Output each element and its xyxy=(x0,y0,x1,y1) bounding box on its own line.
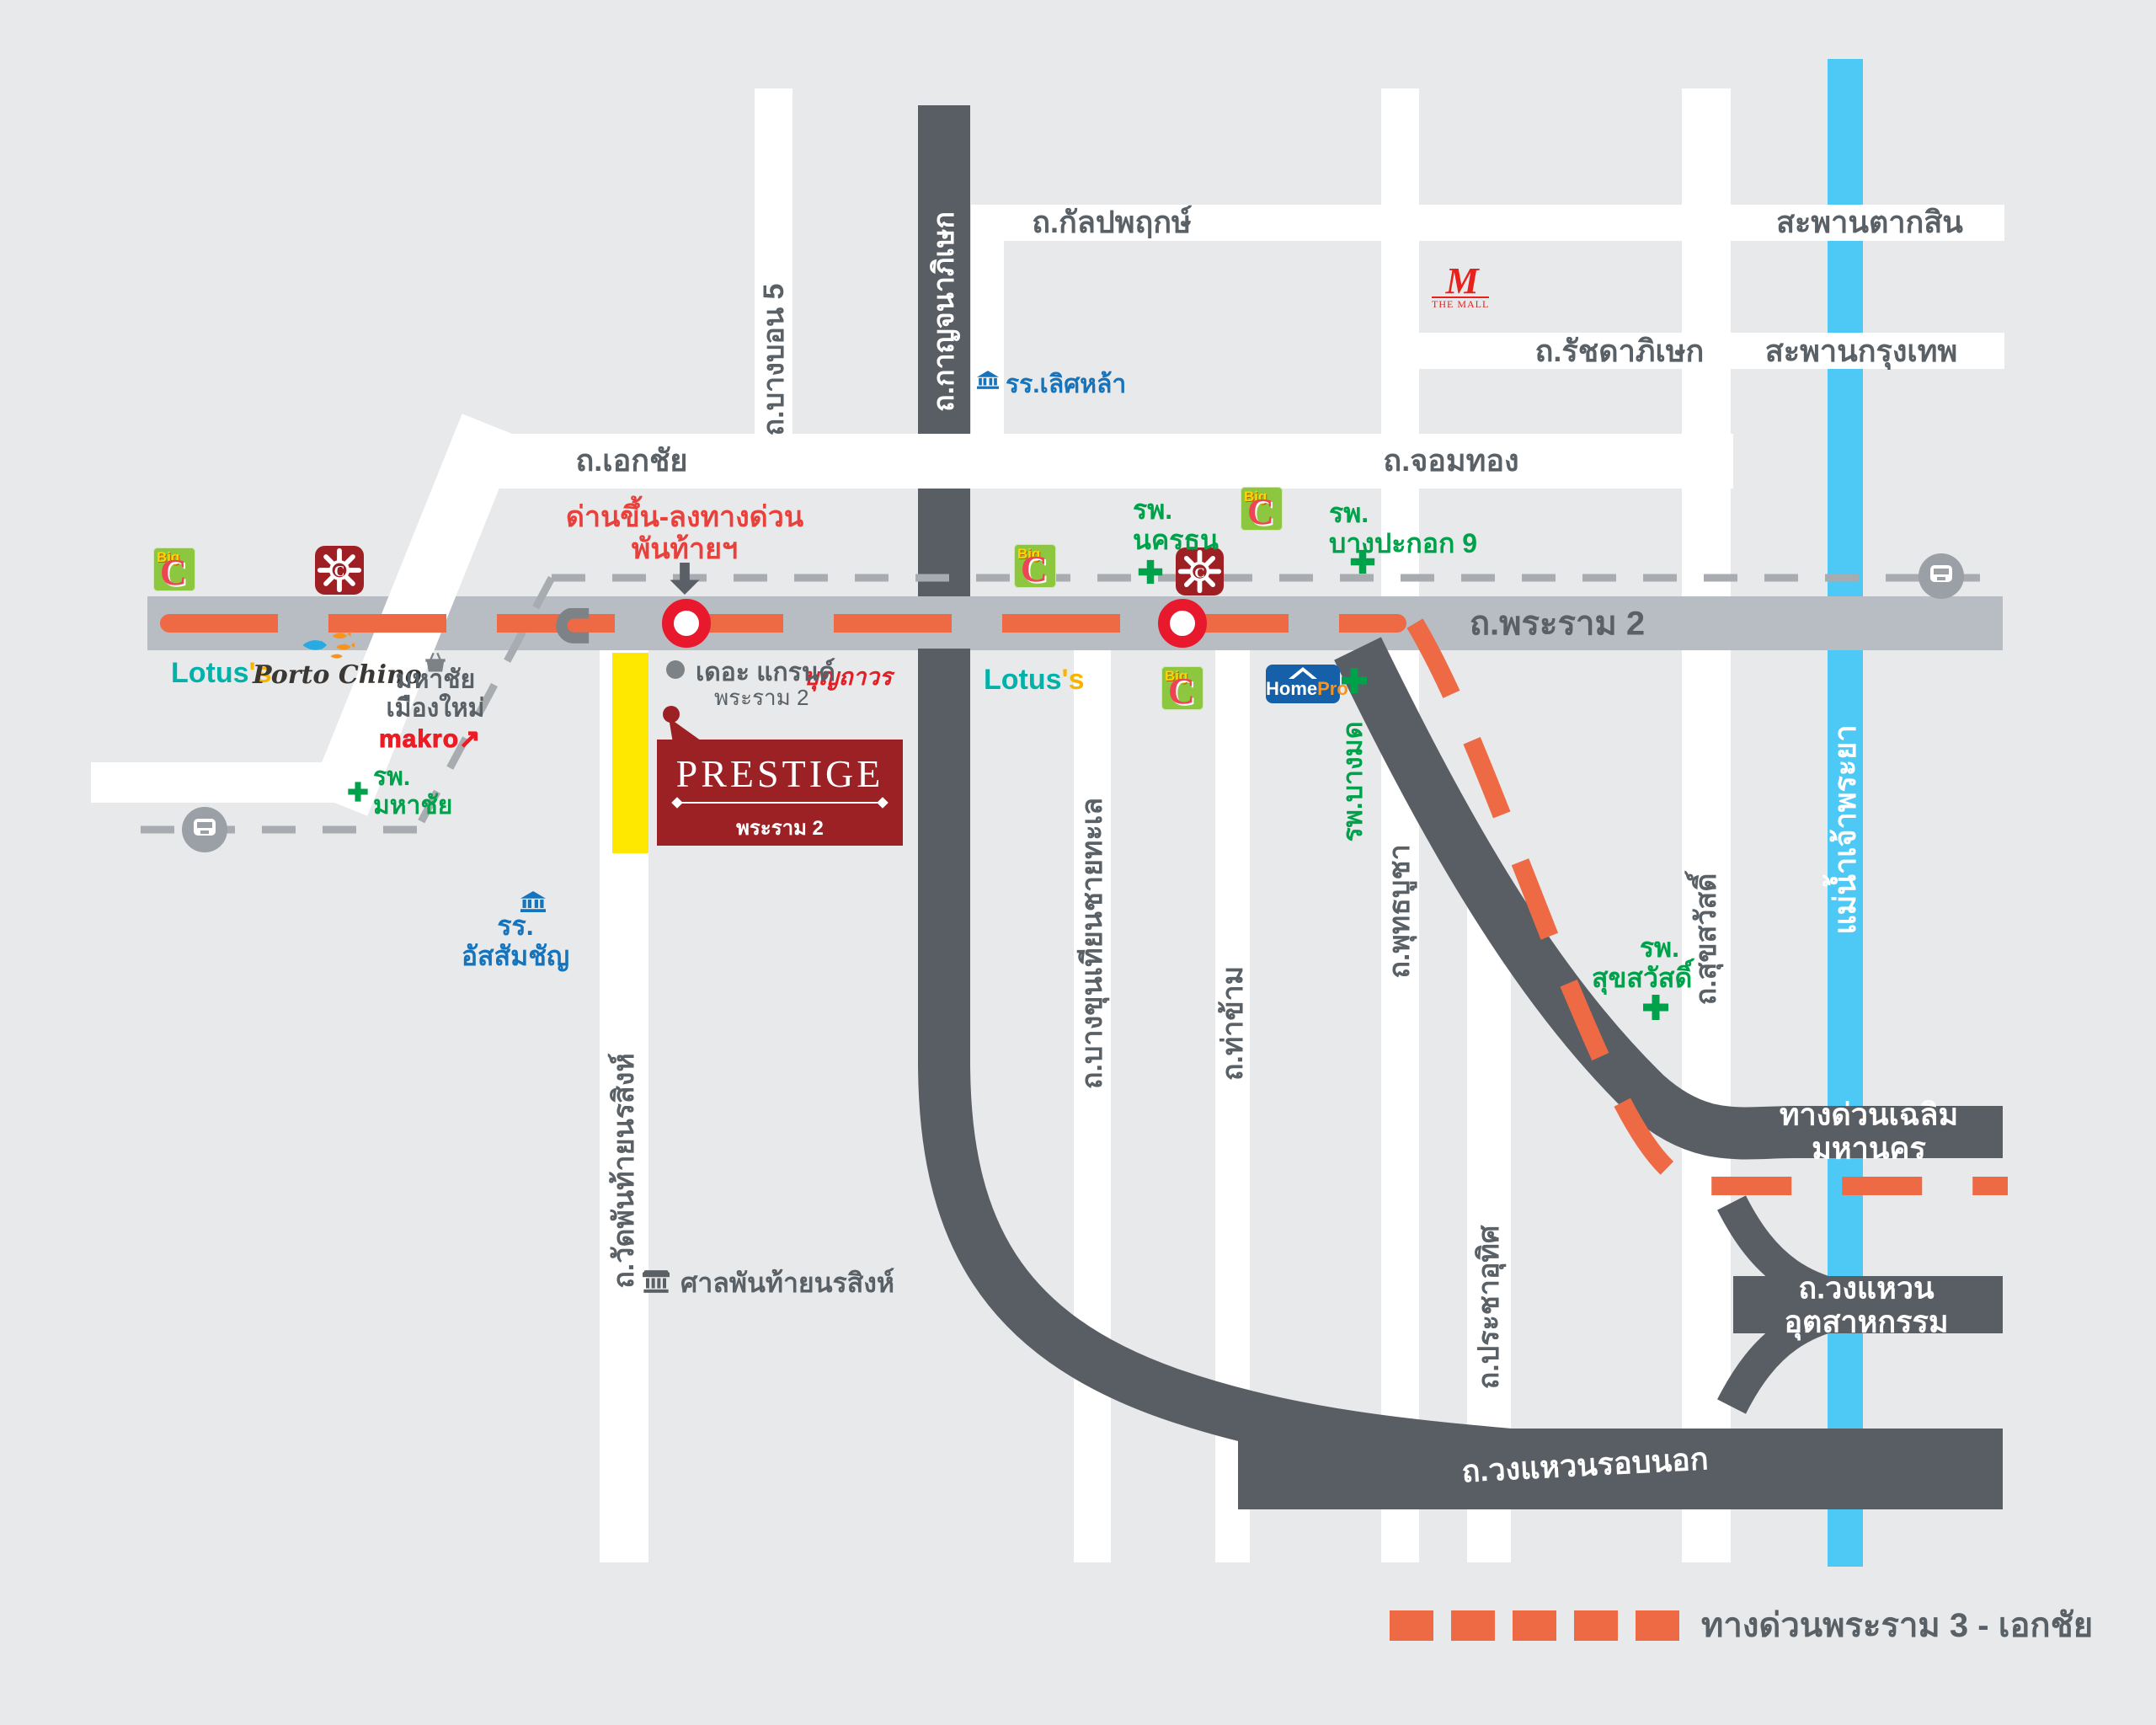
river-label: แม่น้ำเจ้าพระยา xyxy=(1828,724,1862,934)
down-arrow-icon xyxy=(670,563,700,595)
mahachai-hospital-label: รพ. มหาชัย xyxy=(373,763,452,820)
grand-rama2-dot xyxy=(666,660,685,679)
project-callout: PRESTIGE พระราม 2 xyxy=(657,740,903,846)
makro-logo: makro↗ xyxy=(379,724,481,754)
road-outer-ring-curve xyxy=(944,649,1558,1459)
label-ekkachai: ถ.เอกชัย xyxy=(575,444,687,478)
label-chomthong: ถ.จอมทอง xyxy=(1383,444,1518,478)
label-phutthabucha: ถ.พุทธบูชา xyxy=(1384,844,1416,978)
big-c-icon: Big C xyxy=(1014,544,1056,588)
lotus-logo: Lotus's xyxy=(984,664,1085,697)
project-name: PRESTIGE xyxy=(657,751,903,796)
road-mahachai-west xyxy=(91,762,354,803)
train-station-icon xyxy=(1919,553,1964,599)
label-ratchadaphisek: ถ.รัชดาภิเษก xyxy=(1535,334,1705,368)
project-subtitle: พระราม 2 xyxy=(657,811,903,844)
label-industrial-ring: ถ.วงแหวนอุตสาหกรรม xyxy=(1721,1272,2011,1340)
toll-gate-icon xyxy=(1158,599,1207,648)
label-rama2: ถ.พระราม 2 xyxy=(1470,606,1645,644)
homepro-logo: HomePro xyxy=(1266,665,1340,703)
label-kanchanaphisek: ถ.กาญจนาภิเษก xyxy=(928,211,960,412)
label-bangbon5: ถ.บางบอน 5 xyxy=(758,284,790,436)
legend-label: ทางด่วนพระราม 3 - เอกชัย xyxy=(1701,1607,2093,1645)
hospital-cross-icon xyxy=(1641,992,1671,1023)
road-kanchanaphisek-service xyxy=(971,205,1004,489)
assumption-school-label: รร. อัสสัมชัญ xyxy=(462,911,569,972)
location-map: C แม่น้ำเจ้าพระยา xyxy=(0,0,2156,1725)
label-kalapapruek: ถ.กัลปพฤกษ์ xyxy=(1032,206,1192,239)
school-icon xyxy=(520,891,546,912)
road-chalerm-mahanakhon xyxy=(1358,649,2003,1133)
label-prachauthit: ถ.ประชาอุทิศ xyxy=(1473,1226,1505,1390)
hospital-cross-icon xyxy=(1136,558,1165,586)
road-thakham xyxy=(1215,650,1250,1562)
label-taksin-bridge: สะพานตากสิน xyxy=(1776,206,1963,239)
the-mall-icon: M THE MALL xyxy=(1432,266,1489,311)
label-bangkhunthian: ถ.บางขุนเทียนชายทะเล xyxy=(1076,798,1108,1089)
rama3-ekkachai-expressway-dashes xyxy=(160,614,1406,633)
label-watphanthai: ถ.วัดพันท้ายนรสิงห์ xyxy=(608,1053,640,1289)
label-thakham: ถ.ท่าข้าม xyxy=(1217,966,1249,1081)
central-department-store-icon xyxy=(315,546,364,595)
road-bangkhunthian xyxy=(1074,650,1111,1562)
project-plot xyxy=(612,653,648,853)
project-location-dot xyxy=(663,706,680,723)
suksawat-hospital-label: รพ. สุขสวัสดิ์ xyxy=(1592,933,1679,994)
mahachai-mueang-mai-label: มหาชัย เมืองใหม่ xyxy=(387,665,485,722)
road-phutthabucha-line xyxy=(1381,88,1419,1562)
label-suksawat: ถ.สุขสวัสดิ์ xyxy=(1690,873,1722,1006)
grand-rama2-sub: พระราม 2 xyxy=(714,686,808,710)
phanthai-norasing-shrine-label: ศาลพันท้ายนรสิงห์ xyxy=(680,1268,894,1299)
decorative-rule xyxy=(672,798,888,808)
toll-note: ด่านขึ้น-ลงทางด่วน พันท้ายฯ xyxy=(566,501,803,565)
bangpakok9-hospital-label: รพ. บางปะกอก 9 xyxy=(1329,499,1477,559)
road-suksawat-line xyxy=(1682,88,1731,1562)
train-station-icon xyxy=(182,807,227,852)
grand-rama2-label: เดอะ แกรนด์ xyxy=(696,659,835,687)
legend-dash-sample xyxy=(1390,1610,1680,1641)
nakhonthon-hospital-label: รพ. นครธน xyxy=(1133,495,1219,556)
label-chalerm-mahanakhon: ทางด่วนเฉลิมมหานคร xyxy=(1726,1098,2013,1167)
bangmod-hospital-label: รพ.บางมด xyxy=(1338,722,1369,842)
big-c-icon: Big C xyxy=(1161,666,1203,710)
road-kanchanaphisek-mid xyxy=(918,489,970,596)
label-krungthep-bridge: สะพานกรุงเทพ xyxy=(1765,334,1957,368)
big-c-icon: Big C xyxy=(153,547,195,591)
lertlah-school-label: รร.เลิศหล้า xyxy=(1006,371,1126,399)
toll-gate-icon xyxy=(662,599,711,648)
big-c-icon: Big C xyxy=(1241,487,1283,531)
homepro-roof-icon xyxy=(1289,667,1317,679)
